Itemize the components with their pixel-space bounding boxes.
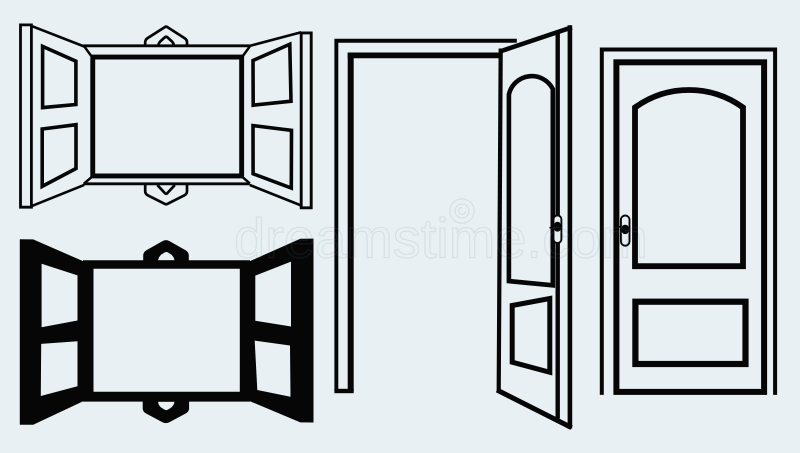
- svg-text:dreamstime.com: dreamstime.com: [234, 207, 648, 270]
